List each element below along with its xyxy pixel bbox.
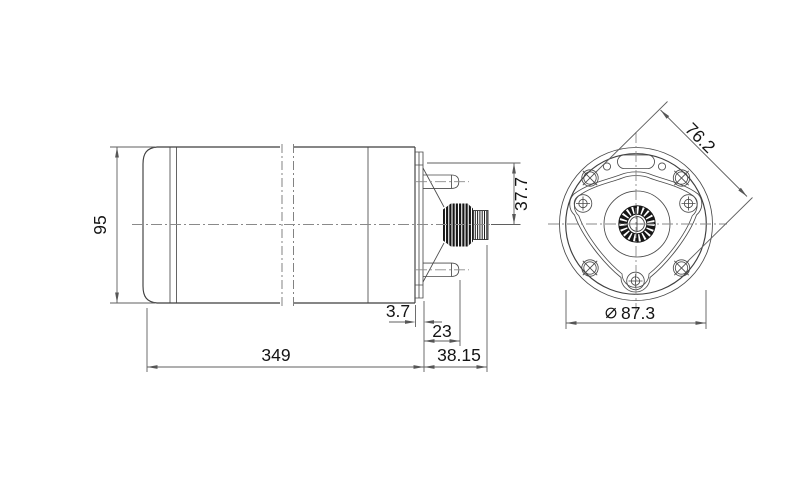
dim-terminal-to-axis-label: 37.7 [511,177,531,211]
motor-body-outline [143,147,415,303]
diameter-symbol-icon [606,308,616,318]
break-lines [282,144,294,306]
dim-shaft-extension-label: 38.15 [437,345,481,365]
dim-flange-offset-label: 3.7 [386,301,410,321]
drawing-canvas: 95 349 38.15 23 3.7 [0,0,800,492]
screw-plus-right [680,195,698,213]
technical-drawing: 95 349 38.15 23 3.7 [0,0,800,492]
dimension-shaft-extension: 38.15 [424,345,487,369]
dim-stud-length-label: 23 [432,321,451,341]
side-view-centerlines [132,182,497,270]
dimension-body-length: 349 [147,245,487,372]
end-plate [415,152,423,298]
screw-plus-left [574,195,592,213]
dim-mount-hole-spacing-label: 76.2 [681,119,719,157]
dimensions: 95 349 38.15 23 3.7 [90,102,753,373]
shaft-cone-lines [423,168,444,282]
dimension-stud-length: 23 [424,280,460,346]
shaft-knurl [443,202,473,248]
front-view [548,132,727,313]
dimension-flange-offset: 3.7 [386,301,442,327]
front-view-centerlines [548,132,727,313]
dimension-body-height: 95 [90,147,155,303]
side-view [132,144,497,306]
dim-body-height-label: 95 [90,215,110,234]
dimension-flange-diameter: 87.3 [566,290,706,329]
screw-plus-bottom [627,272,645,290]
screw-x-bottom-left [582,260,598,276]
dim-body-length-label: 349 [261,345,290,365]
body-seam-lines [170,148,368,303]
dim-flange-diameter-label: 87.3 [621,303,655,323]
pilot-hole-right [658,163,665,170]
shaft-spline [474,211,489,240]
screw-x-top-right [673,170,689,186]
